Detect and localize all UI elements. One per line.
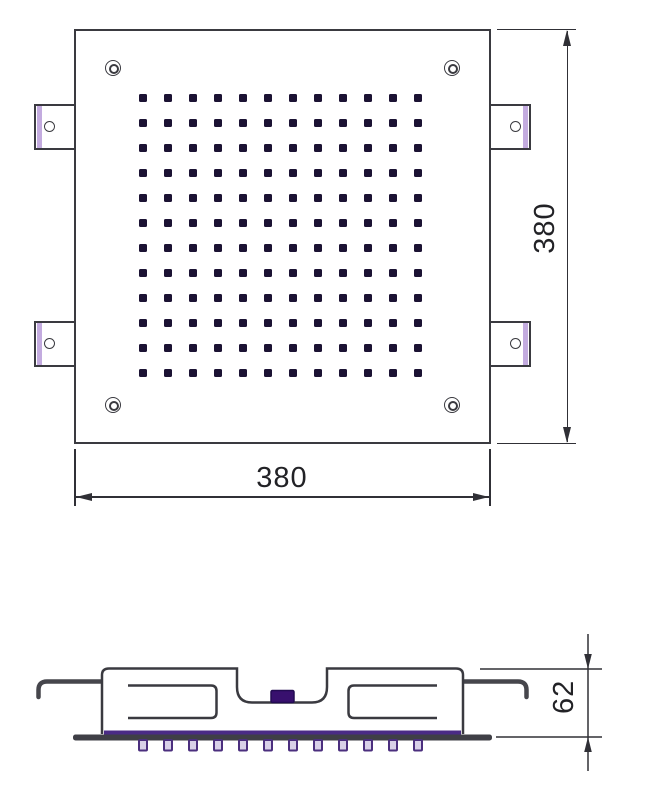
nozzle-dot (289, 144, 297, 152)
nozzle-dot (339, 119, 347, 127)
side-view: 62 (0, 600, 645, 800)
nozzle-dot (189, 369, 197, 377)
dim-width-line (76, 496, 489, 498)
nozzle-dot (364, 269, 372, 277)
nozzle-dot (239, 119, 247, 127)
nozzle-dot (239, 194, 247, 202)
dim-arrow-left-icon (76, 493, 92, 501)
nozzle-dot (264, 194, 272, 202)
corner-screw-bottom-left (105, 397, 121, 413)
nozzle-dot (339, 319, 347, 327)
nozzle-dot (264, 219, 272, 227)
nozzle-dot (264, 319, 272, 327)
dim-height-label: 380 (529, 183, 561, 273)
nozzle-dot (264, 144, 272, 152)
nozzle-dot (314, 269, 322, 277)
nozzle-dot (364, 319, 372, 327)
nozzle-dot (189, 344, 197, 352)
mounting-spring-left (39, 682, 104, 698)
nozzle-dot (364, 344, 372, 352)
nozzle-dot (314, 319, 322, 327)
nozzle-tooth (339, 740, 347, 751)
nozzle-dot (289, 194, 297, 202)
tab-gasket-stripe (523, 323, 528, 365)
nozzle-dot (264, 244, 272, 252)
nozzle-dot (189, 144, 197, 152)
nozzle-dot (239, 144, 247, 152)
nozzle-tooth (364, 740, 372, 751)
nozzle-dot (164, 94, 172, 102)
nozzle-dot (389, 194, 397, 202)
nozzle-dot (289, 244, 297, 252)
nozzle-dot (414, 219, 422, 227)
nozzle-dot (414, 269, 422, 277)
nozzle-dot (139, 319, 147, 327)
nozzle-dot (364, 244, 372, 252)
nozzle-dot (164, 344, 172, 352)
tab-screw-hole (510, 121, 521, 132)
nozzle-dot (139, 294, 147, 302)
nozzle-dot (139, 244, 147, 252)
gasket-stripe (104, 731, 461, 736)
nozzle-tooth (389, 740, 397, 751)
nozzle-dot (164, 369, 172, 377)
nozzle-dot (339, 194, 347, 202)
nozzle-dot (414, 369, 422, 377)
dim-height-line (567, 31, 569, 442)
nozzle-dot (314, 244, 322, 252)
nozzle-tooth (314, 740, 322, 751)
nozzle-tooth (289, 740, 297, 751)
nozzle-dot (339, 244, 347, 252)
nozzle-dot (189, 244, 197, 252)
mounting-tab-bottom-right (489, 321, 531, 367)
nozzle-dot (189, 219, 197, 227)
nozzle-dot (239, 94, 247, 102)
nozzle-dot (389, 119, 397, 127)
dim-depth-label: 62 (548, 680, 580, 714)
dim-arrow-right-icon (473, 493, 489, 501)
nozzle-dot (214, 219, 222, 227)
nozzle-dot (414, 294, 422, 302)
nozzle-dot (339, 269, 347, 277)
nozzle-dot (314, 219, 322, 227)
nozzle-dot (214, 144, 222, 152)
nozzle-dot (189, 194, 197, 202)
mounting-spring-right (462, 682, 527, 698)
nozzle-dot (164, 144, 172, 152)
nozzle-tooth (189, 740, 197, 751)
nozzle-dot (289, 119, 297, 127)
tab-screw-hole (44, 338, 55, 349)
nozzle-dot (414, 194, 422, 202)
nozzle-dot (239, 294, 247, 302)
nozzle-dot (389, 94, 397, 102)
dim-arrow-down-icon (584, 654, 592, 669)
nozzle-dot (239, 344, 247, 352)
nozzle-dot (214, 369, 222, 377)
nozzle-dot (364, 144, 372, 152)
nozzle-dot (364, 94, 372, 102)
nozzle-dot (389, 144, 397, 152)
mounting-tab-bottom-left (34, 321, 76, 367)
nozzle-dot (239, 369, 247, 377)
nozzle-dot (139, 119, 147, 127)
nozzle-dot (214, 344, 222, 352)
nozzle-dot (289, 319, 297, 327)
corner-screw-top-right (444, 60, 460, 76)
nozzle-dot (164, 194, 172, 202)
nozzle-dot (414, 344, 422, 352)
tab-gasket-stripe (37, 106, 42, 148)
nozzle-dot (314, 194, 322, 202)
nozzle-dot (364, 294, 372, 302)
inlet-connector (271, 691, 294, 703)
mounting-tab-top-left (34, 104, 76, 150)
nozzle-dot (389, 244, 397, 252)
nozzle-dot (339, 369, 347, 377)
corner-screw-bottom-right (444, 397, 460, 413)
nozzle-dot (214, 319, 222, 327)
nozzle-dot (264, 269, 272, 277)
nozzle-dot (289, 94, 297, 102)
nozzle-dot (289, 369, 297, 377)
dim-arrow-up-icon (584, 737, 592, 752)
nozzle-dot (189, 169, 197, 177)
nozzle-dot (364, 219, 372, 227)
nozzle-dot (314, 144, 322, 152)
nozzle-tooth (264, 740, 272, 751)
nozzle-dot (214, 169, 222, 177)
nozzle-dot (339, 144, 347, 152)
nozzle-tooth (239, 740, 247, 751)
nozzle-dot (214, 244, 222, 252)
mounting-tab-top-right (489, 104, 531, 150)
nozzle-dot (314, 344, 322, 352)
nozzle-dot (389, 169, 397, 177)
nozzle-dot (139, 344, 147, 352)
nozzle-dot (414, 319, 422, 327)
nozzle-dot (339, 94, 347, 102)
faceplate (74, 29, 491, 444)
nozzle-dot (214, 94, 222, 102)
nozzle-tooth (214, 740, 222, 751)
nozzle-dot (239, 244, 247, 252)
nozzle-dot (214, 269, 222, 277)
nozzle-dot (364, 169, 372, 177)
nozzle-dot (189, 294, 197, 302)
nozzle-dot (414, 169, 422, 177)
nozzle-dot (389, 269, 397, 277)
nozzle-dot (264, 369, 272, 377)
nozzle-dot (314, 369, 322, 377)
nozzle-dot (314, 119, 322, 127)
nozzle-dot (314, 169, 322, 177)
nozzle-dot (364, 119, 372, 127)
nozzle-dot (189, 269, 197, 277)
nozzle-dot (164, 319, 172, 327)
nozzle-teeth (139, 740, 422, 751)
tab-gasket-stripe (37, 323, 42, 365)
nozzle-dot (164, 119, 172, 127)
nozzle-dot (339, 169, 347, 177)
dim-arrow-up-icon (563, 30, 571, 46)
nozzle-dot (389, 344, 397, 352)
nozzle-dot (189, 119, 197, 127)
nozzle-dot (189, 319, 197, 327)
nozzle-dot (264, 344, 272, 352)
tab-screw-hole (44, 121, 55, 132)
nozzle-dot (339, 294, 347, 302)
tab-gasket-stripe (523, 106, 528, 148)
technical-drawing-canvas: 380 380 62 (0, 0, 645, 800)
tab-screw-hole (510, 338, 521, 349)
nozzle-dot (389, 294, 397, 302)
corner-screw-top-left (105, 60, 121, 76)
dim-arrow-down-icon (563, 427, 571, 443)
nozzle-dot (389, 319, 397, 327)
nozzle-dot (289, 269, 297, 277)
nozzle-dot (414, 244, 422, 252)
dim-width-extension-right (489, 449, 491, 506)
nozzle-dot (139, 169, 147, 177)
nozzle-dot (189, 94, 197, 102)
dim-width-label: 380 (232, 462, 332, 494)
nozzle-dot (139, 219, 147, 227)
nozzle-dot (164, 219, 172, 227)
nozzle-dot (264, 294, 272, 302)
nozzle-tooth (139, 740, 147, 751)
nozzle-dot (164, 244, 172, 252)
nozzle-dot (214, 119, 222, 127)
nozzle-dot (289, 344, 297, 352)
nozzle-dot (339, 344, 347, 352)
nozzle-dot (389, 219, 397, 227)
nozzle-dot (414, 94, 422, 102)
nozzle-dot (289, 219, 297, 227)
nozzle-dot (289, 169, 297, 177)
nozzle-dot (414, 119, 422, 127)
nozzle-dot (314, 94, 322, 102)
nozzle-dot (239, 169, 247, 177)
nozzle-dot (389, 369, 397, 377)
nozzle-dot (239, 319, 247, 327)
nozzle-tooth (164, 740, 172, 751)
nozzle-dot (214, 194, 222, 202)
nozzle-dot (164, 294, 172, 302)
nozzle-dot (164, 169, 172, 177)
nozzle-dot (139, 144, 147, 152)
nozzle-dot (289, 294, 297, 302)
faceplate-edge (73, 735, 492, 741)
nozzle-dot (139, 194, 147, 202)
nozzle-dot (139, 369, 147, 377)
nozzle-dot (239, 269, 247, 277)
nozzle-dot (264, 169, 272, 177)
nozzle-dot (339, 219, 347, 227)
nozzle-dot (139, 94, 147, 102)
nozzle-dot (364, 194, 372, 202)
nozzle-dot (414, 144, 422, 152)
nozzle-dot (314, 294, 322, 302)
nozzle-dot (139, 269, 147, 277)
nozzle-dot (264, 119, 272, 127)
nozzle-dot (214, 294, 222, 302)
nozzle-dot (164, 269, 172, 277)
nozzle-tooth (414, 740, 422, 751)
nozzle-dot (364, 369, 372, 377)
nozzle-dot (239, 219, 247, 227)
nozzle-dot (264, 94, 272, 102)
